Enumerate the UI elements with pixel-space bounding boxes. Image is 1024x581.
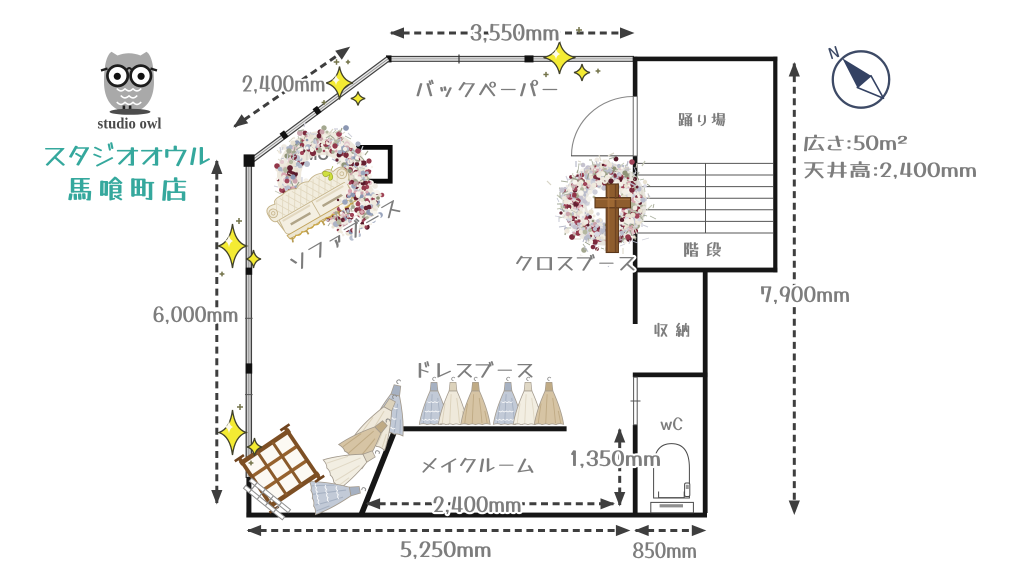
svg-text:studio owl: studio owl xyxy=(98,116,163,133)
